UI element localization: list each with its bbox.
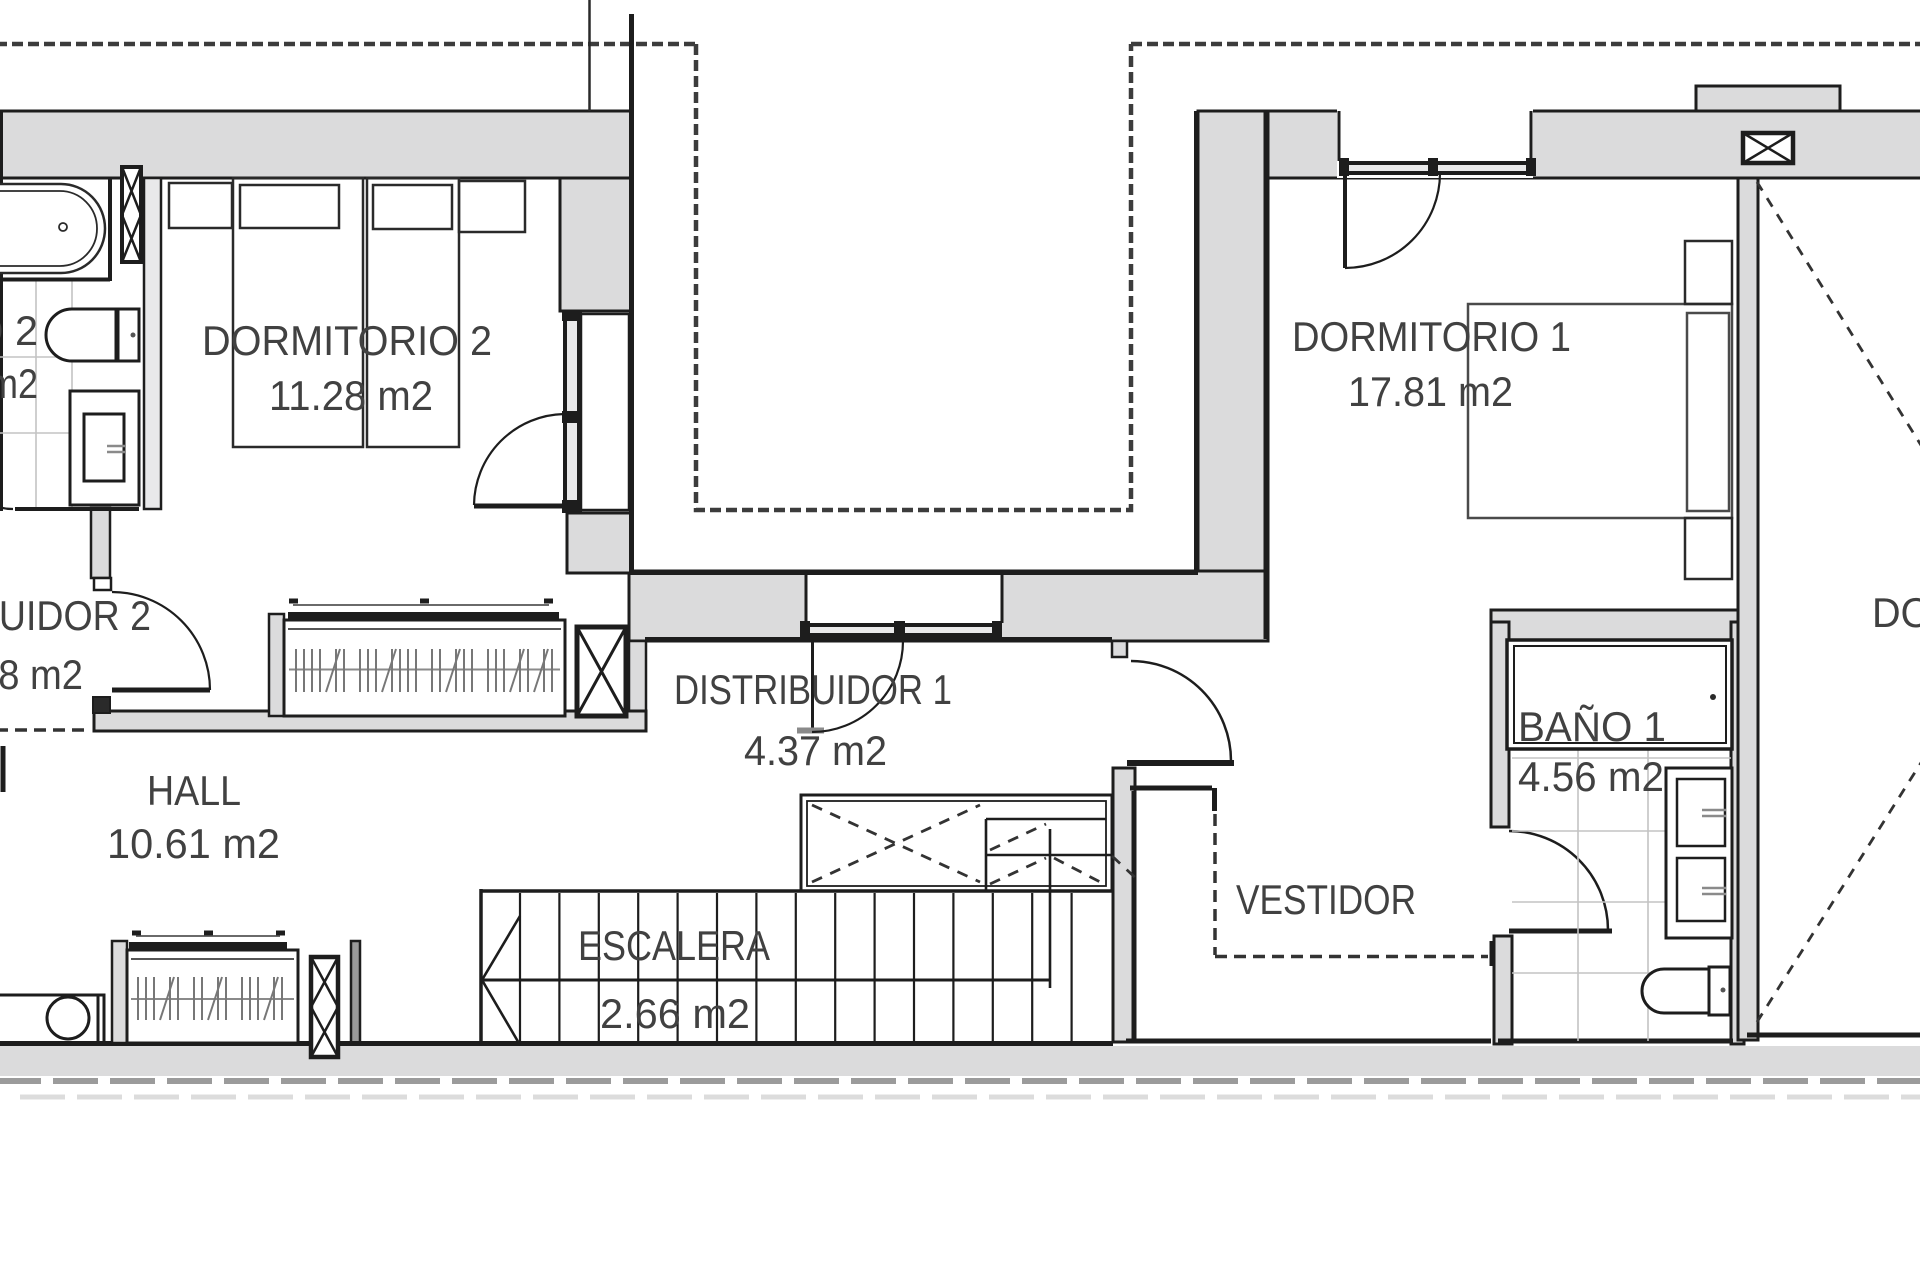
svg-text:DISTRIBUIDOR 2: DISTRIBUIDOR 2	[0, 592, 151, 639]
svg-text:5 m2: 5 m2	[0, 360, 38, 407]
svg-text:17.81 m2: 17.81 m2	[1348, 368, 1513, 415]
svg-text:4.37 m2: 4.37 m2	[744, 727, 887, 774]
svg-text:2.66 m2: 2.66 m2	[600, 990, 750, 1037]
svg-text:HALL: HALL	[147, 767, 241, 814]
svg-text:BAÑO 2: BAÑO 2	[0, 307, 38, 354]
svg-text:98 m2: 98 m2	[0, 651, 83, 698]
svg-text:BAÑO 1: BAÑO 1	[1518, 703, 1666, 750]
svg-text:4.56 m2: 4.56 m2	[1518, 753, 1664, 800]
svg-text:DISTRIBUIDOR 1: DISTRIBUIDOR 1	[674, 666, 952, 713]
svg-text:DORMITORIO 1: DORMITORIO 1	[1292, 313, 1571, 360]
svg-text:DORMITORIO 2: DORMITORIO 2	[202, 317, 492, 364]
svg-text:VESTIDOR: VESTIDOR	[1236, 876, 1416, 923]
svg-text:ESCALERA: ESCALERA	[578, 922, 770, 969]
svg-text:10.61 m2: 10.61 m2	[107, 820, 280, 867]
svg-text:DORMITORIO 3: DORMITORIO 3	[1872, 589, 1920, 636]
svg-text:11.28 m2: 11.28 m2	[269, 372, 433, 419]
